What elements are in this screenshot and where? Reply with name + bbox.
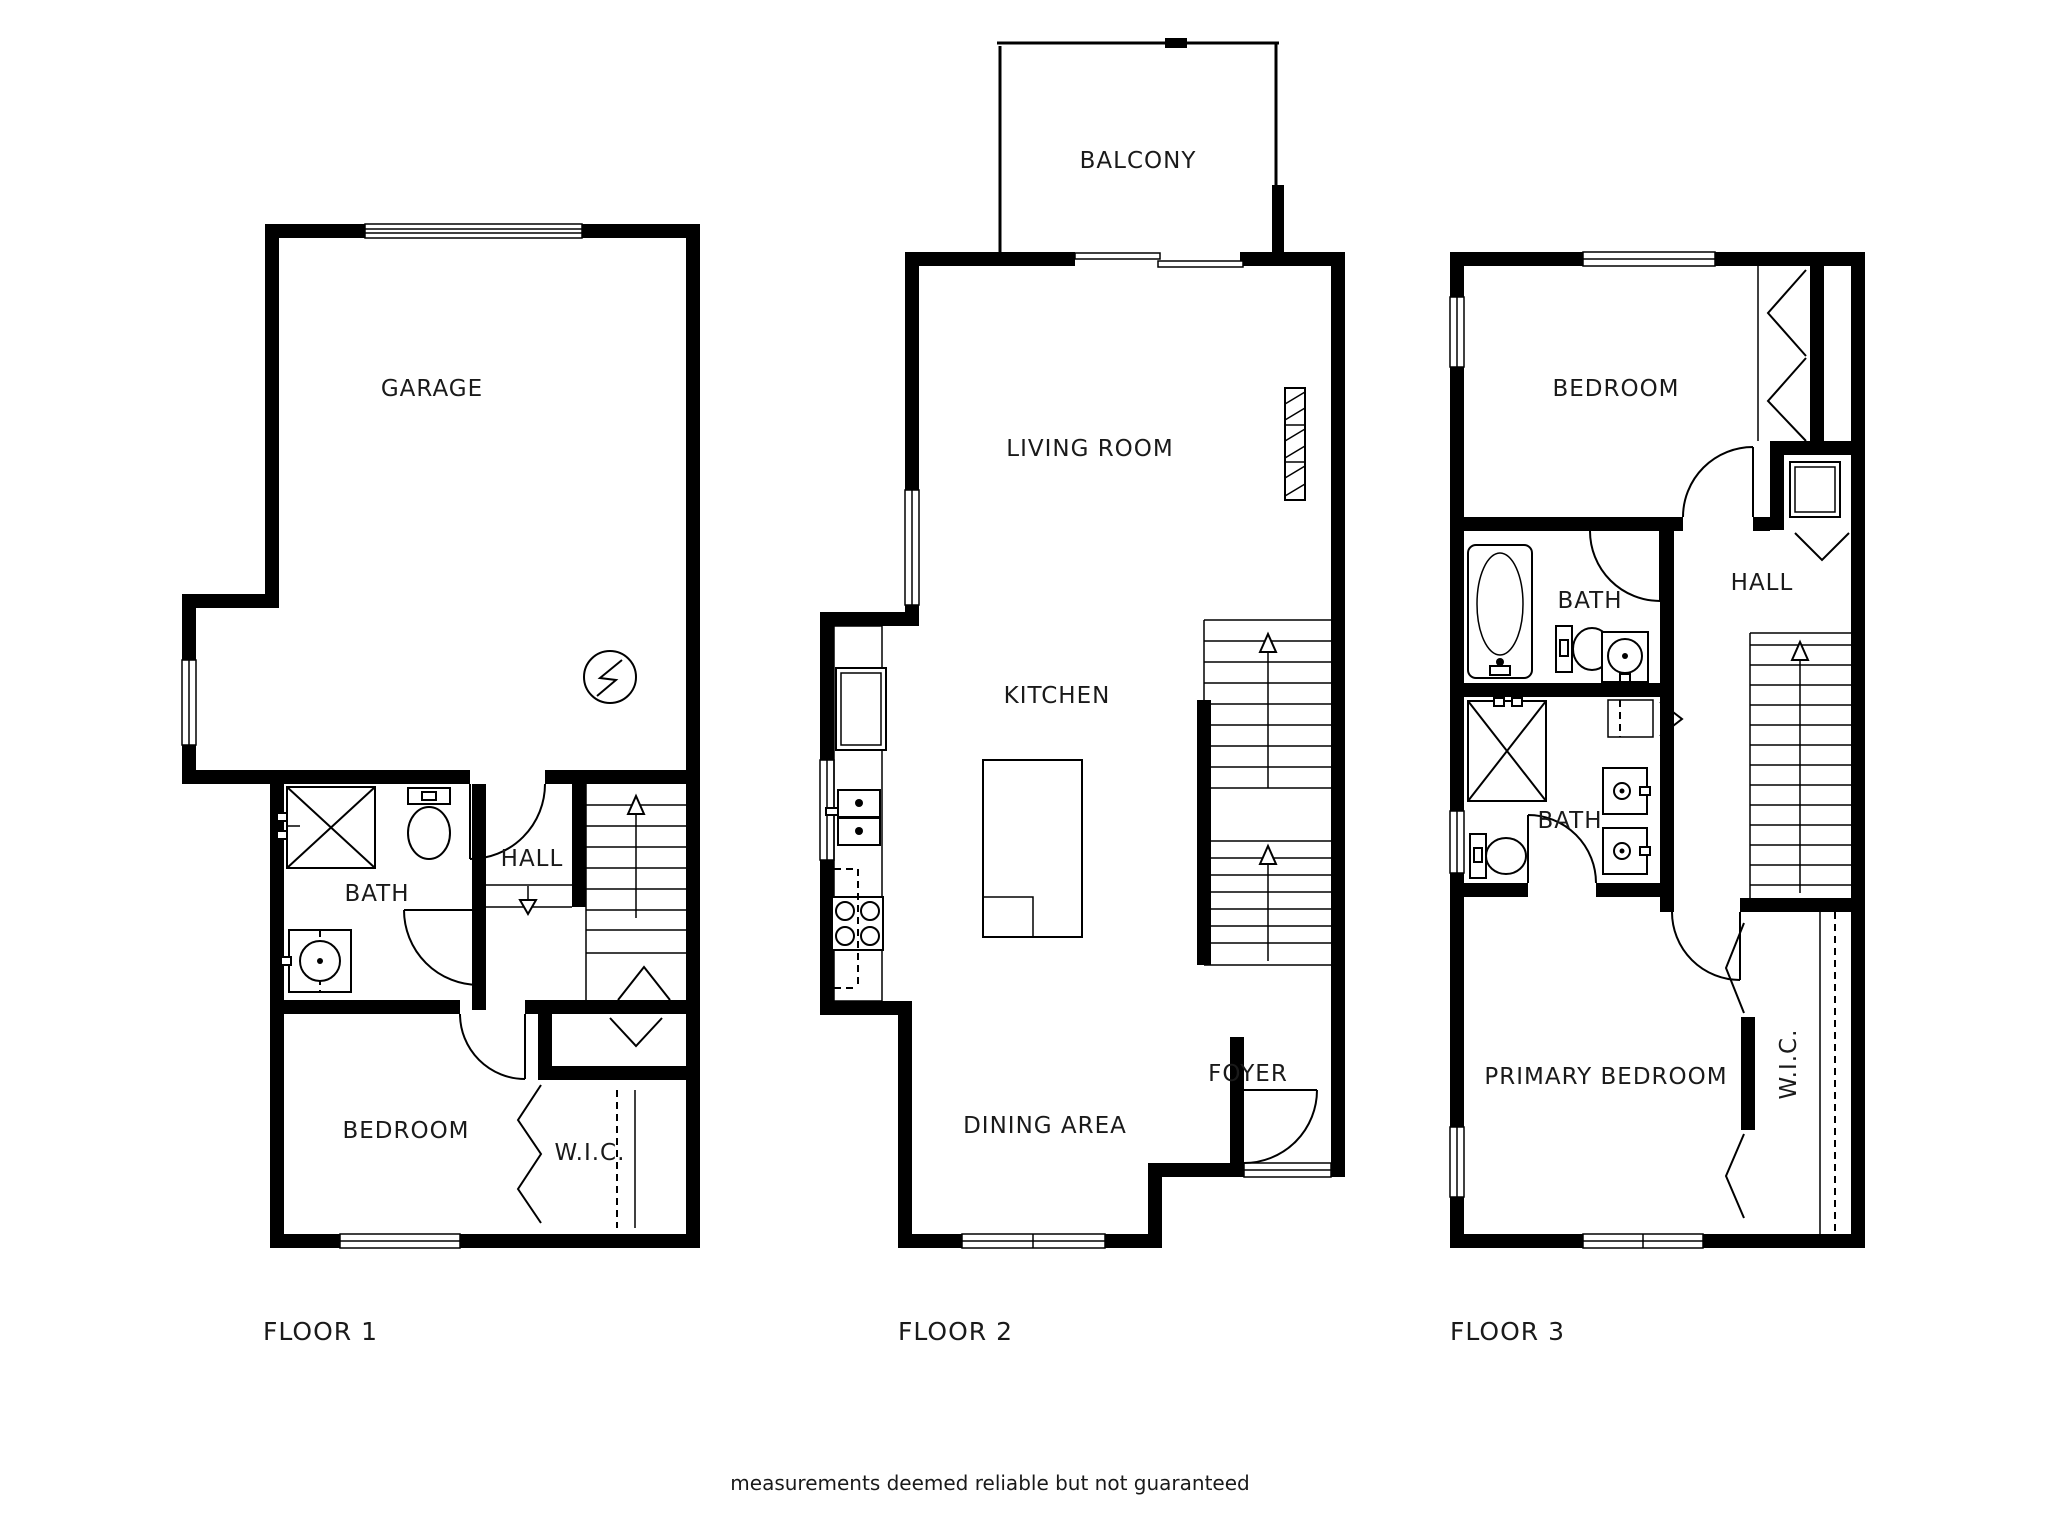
understair-closet-door [618,967,670,1000]
balcony-label: BALCONY [1080,148,1197,174]
bedroom-label: BEDROOM [1552,376,1679,402]
balcony-railing [997,38,1284,252]
fireplace [1285,388,1305,500]
bathtub [1468,545,1532,678]
primary-bottom-window [1583,1234,1703,1248]
shower [277,787,375,868]
kitchen-counter [826,626,886,1001]
floor-2-caption: FLOOR 2 [898,1317,1013,1346]
garage-door-window [365,224,582,238]
utility-closet-door [1795,533,1849,560]
floor-plan-drawing: GARAGE BATH HALL BEDROOM W.I.C. FLOOR 1 [0,0,2048,1536]
primary-bedroom-door [1672,912,1740,980]
toilet [408,788,450,859]
wic-bifold-upper [1726,923,1744,1013]
bedroom-top-window [1583,252,1715,266]
vanity-sink [281,930,351,992]
floor-3-wic-interior [1820,912,1835,1234]
floor-plan-page: GARAGE BATH HALL BEDROOM W.I.C. FLOOR 1 [0,0,2048,1536]
kitchen-label: KITCHEN [1004,683,1111,709]
closet-bifold-lower [1768,358,1806,441]
bedroom-label: BEDROOM [342,1118,469,1144]
lower-bath-label: BATH [1537,808,1602,834]
floor-1-caption: FLOOR 1 [263,1317,378,1346]
bedroom-door [460,1014,525,1079]
floor-2-plan: BALCONY LIVING ROOM KITCHEN DINING AREA … [820,38,1345,1346]
bedroom-window [340,1234,460,1248]
bath-door [404,910,479,985]
primary-left-window [1450,1127,1464,1197]
bath-left-window [1450,811,1464,873]
dining-window [962,1234,1105,1248]
dining-area-label: DINING AREA [963,1113,1127,1139]
closet-bifold-upper [1768,270,1806,356]
garage-label: GARAGE [381,376,483,402]
stairs-up-arrow-lower [1260,846,1276,864]
stairs-up-arrow [1260,634,1276,652]
lower-bath-fixtures [1468,698,1682,883]
kitchen-island [983,760,1082,937]
bedroom-door [1683,447,1753,517]
foyer-label: FOYER [1208,1061,1288,1087]
living-room-window [905,490,919,605]
utility-closet [1790,462,1849,560]
bath-label: BATH [344,881,409,907]
double-vanity [1603,768,1650,874]
electrical-meter-icon [584,651,636,703]
shower [1468,698,1546,801]
bedroom-closet-bifold [518,1085,541,1223]
bedroom-left-window [1450,297,1464,367]
balcony-sliding-door [1075,253,1243,267]
floor-3-stairs [1750,633,1851,898]
entry-door [1244,1090,1317,1163]
toilet [1470,834,1526,878]
wic-door [610,1018,662,1046]
living-room-label: LIVING ROOM [1006,436,1174,462]
floor-1-plan: GARAGE BATH HALL BEDROOM W.I.C. FLOOR 1 [182,224,700,1346]
entry-door-threshold [1244,1163,1331,1177]
disclaimer-text: measurements deemed reliable but not gua… [730,1471,1249,1495]
floor-3-caption: FLOOR 3 [1450,1317,1565,1346]
floor-3-plan: BEDROOM BATH HALL BATH PRIMARY BEDROOM W… [1450,252,1865,1346]
bedroom-closet [1758,266,1806,441]
wic-bifold-lower [1726,1134,1744,1218]
floor-2-walls [820,252,1345,1248]
wic-label: W.I.C. [1776,1029,1802,1100]
floor-3-doors [1672,447,1753,1218]
floor-1-hall-landing [486,885,572,914]
garage-side-window [182,660,196,745]
hall-label: HALL [1731,570,1794,596]
primary-bedroom-label: PRIMARY BEDROOM [1484,1064,1727,1090]
floor-2-windows [820,253,1331,1248]
round-sink [1602,632,1648,682]
floor-1-stairs [586,784,686,1000]
wic-label: W.I.C. [555,1140,626,1166]
floor-2-stairs [1204,620,1331,965]
hall-label: HALL [501,846,564,872]
refrigerator [836,668,886,750]
upper-bath-label: BATH [1557,588,1622,614]
